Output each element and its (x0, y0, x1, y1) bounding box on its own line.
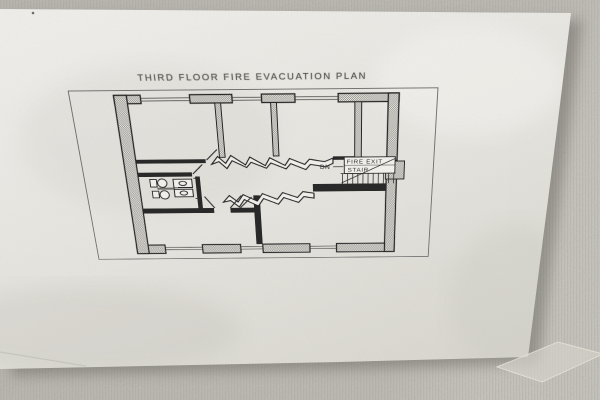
corridor-break-arrows (211, 155, 334, 208)
paper-speck (32, 12, 35, 15)
stall-fixtures (173, 178, 199, 198)
stair-label-line2: STAIR (348, 167, 369, 173)
toilet-icon (152, 191, 170, 199)
dn-label: DN (320, 165, 331, 171)
stair-label-line1: FIRE EXIT (347, 159, 383, 165)
bathroom-fixtures (150, 178, 200, 199)
plan-title: THIRD FLOOR FIRE EVACUATION PLAN (62, 70, 442, 84)
evacuation-plan-sheet: THIRD FLOOR FIRE EVACUATION PLAN (62, 70, 442, 262)
floor-plan-drawing: DN FIRE EXIT STAIR (65, 86, 441, 263)
toilet-icon (150, 179, 168, 188)
